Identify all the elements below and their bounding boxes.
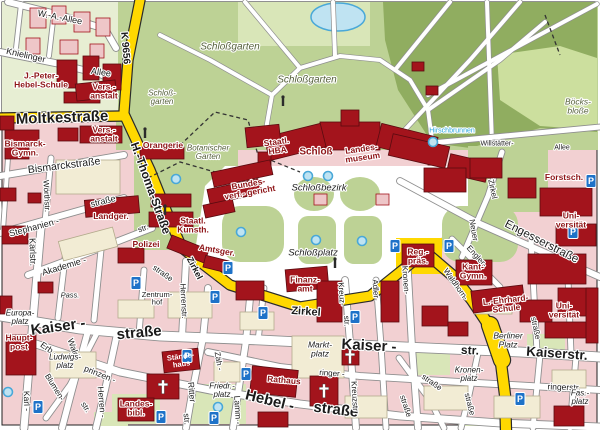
building-universitaet-6 (545, 322, 591, 338)
label-schlossgarten-2: Schloßgarten (277, 75, 337, 86)
label-schloss: Schloß (299, 147, 332, 158)
fountain-icon (358, 237, 367, 246)
label-kreuzstrasse-nord: Kreuz- (336, 282, 347, 306)
parking-icon-letter: P (133, 278, 139, 288)
monument-icon (144, 130, 146, 138)
parking-icon-letter: P (517, 394, 523, 404)
building-universitaet-8 (470, 158, 502, 178)
building-suedost-block (554, 406, 584, 426)
label-passage: Pass. (61, 291, 80, 300)
label-schlossbezirk: Schloßbezirk (292, 182, 348, 193)
label-forstschule: Forstsch. (545, 172, 583, 182)
building-nw-haus-6 (60, 40, 78, 54)
fountain-icon (304, 172, 313, 181)
monument-icon (334, 260, 336, 268)
building-hebelstrasse-block (258, 412, 288, 427)
building-adlerstrasse-block (381, 281, 399, 322)
building-ne-haus-2 (426, 86, 438, 95)
parking-icon-letter: P (243, 369, 249, 379)
label-kaiser-str: str. (461, 343, 480, 358)
label-ritterstrasse-str: str. (181, 413, 192, 425)
building-karlstrasse-block (38, 282, 53, 293)
label-karlstr: Karlstr. (27, 238, 38, 266)
label-boecksbloesse: Böcks-bloße (565, 97, 591, 116)
label-marktplatz: Markt-platz (308, 340, 332, 359)
fountain-icon (214, 403, 223, 412)
label-kaiser-mitte: Kaiser - (341, 336, 397, 356)
label-zirkel-mitte: Zirkel (291, 305, 321, 319)
map-viewport: PPPPPPPPPPPPPPPW.-A.-AlleeK 9656Knieling… (0, 0, 600, 430)
parking-icon-letter: P (225, 263, 231, 273)
label-karl-sued: Karl - (22, 391, 33, 412)
label-regierungspraesidium: Reg.-präs. (407, 247, 428, 266)
label-ritterstrasse: Ritter (186, 381, 198, 402)
label-adlerstrasse: Adler- (370, 279, 380, 301)
pond (311, 3, 365, 31)
monument-icon-top (143, 127, 146, 130)
label-willstaetter: Willstätter- (480, 140, 514, 147)
label-orangerie: Orangerie (143, 140, 183, 150)
monument-icon (282, 98, 284, 106)
building-cream-2 (424, 386, 468, 410)
building-ost-randstreifen (586, 288, 598, 343)
label-versanstalt-2: Vers.-anstalt (90, 125, 118, 144)
building-cream-7 (240, 312, 274, 330)
allee-north (333, 2, 335, 56)
label-staatl-kunsthalle: Staatl.Kunsth. (177, 216, 209, 235)
monument-icon-top (281, 95, 284, 98)
label-kreuzstrasse-sued: Kreuzstr (349, 381, 360, 412)
building-stephanien-block-2 (28, 193, 41, 203)
label-landgericht: Landger. (93, 211, 128, 221)
building-schlossbezirk-haus-2 (376, 194, 389, 205)
building-nw-haus-4 (96, 18, 110, 36)
label-woerthstr: Wörthstr. (41, 180, 52, 212)
label-fasanenplatz: Fas.-platz (571, 389, 590, 406)
building-campus-block (424, 168, 466, 192)
label-schlossgarten-1: Schloßgarten (200, 42, 260, 53)
fountain-icon (324, 172, 333, 181)
building-moltke-block-2 (0, 116, 14, 130)
label-hirschbrunnen: Hirschbrunnen (429, 127, 475, 134)
label-zaehringer-ringer: ringer - (319, 368, 345, 379)
building-polizei-gebaeude (118, 248, 144, 263)
building-ne-haus-1 (412, 62, 424, 71)
fountain-icon (237, 228, 246, 237)
fountain-icon (172, 175, 181, 184)
fountain-icon (312, 236, 321, 245)
label-schlossplatz: Schloßplatz (288, 247, 338, 258)
parking-icon-letter: P (158, 412, 164, 422)
parking-icon-letter: P (35, 402, 41, 412)
parking-icon-letter: P (352, 312, 358, 322)
parking-icon-letter: P (211, 413, 217, 423)
label-kant-gymnasium: Kant-Gymn. (460, 262, 486, 281)
building-moltke-block-1 (58, 128, 78, 141)
building-schloss-turm (341, 110, 359, 126)
label-lammstrasse: Lamm - (232, 395, 244, 424)
label-willstaetter-allee: Allee (554, 144, 570, 151)
label-kreuzstrasse-nord-str: str. (342, 315, 352, 326)
parking-icon-letter: P (588, 176, 594, 186)
city-map-canvas: PPPPPPPPPPPPPPPW.-A.-AlleeK 9656Knieling… (0, 0, 600, 430)
parking-icon-letter: P (212, 292, 218, 302)
building-cream-6 (118, 300, 154, 318)
building-zentrumhof-cream (168, 292, 212, 318)
building-zirkel-block (236, 281, 264, 300)
building-kaiser-nord-block-2 (448, 322, 468, 336)
parking-icon-letter: P (446, 241, 452, 251)
building-stephanien-block-1 (0, 188, 16, 201)
fountain-icon (4, 388, 13, 397)
building-schlossbezirk-haus-1 (314, 194, 327, 205)
label-versanstalt-1: Vers.-anstalt (90, 82, 118, 101)
fountain-icon (429, 138, 438, 147)
label-schlossgarten-klein: Schloß-garten (148, 89, 176, 106)
parking-icon-letter: P (392, 241, 398, 251)
parking-icon-letter: P (260, 308, 266, 318)
building-universitaet-7 (508, 178, 536, 198)
building-kaiser-nord-block-1 (422, 306, 448, 326)
label-herrenstrasse-nord: Herrenstr. (178, 283, 189, 319)
label-polizei: Polizei (133, 239, 160, 249)
